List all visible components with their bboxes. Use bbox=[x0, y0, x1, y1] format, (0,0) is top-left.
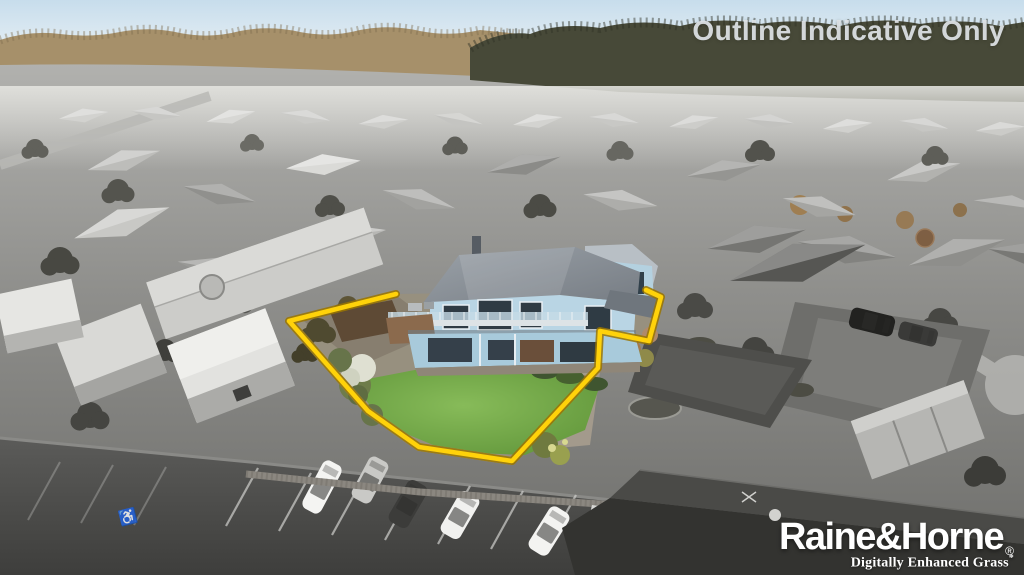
brand-logo: Raine&Horne® Digitally Enhanced Grass* bbox=[779, 518, 1012, 572]
outline-note: Outline Indicative Only bbox=[692, 15, 1005, 47]
gazebo-roof bbox=[916, 229, 934, 247]
chimney bbox=[472, 236, 481, 254]
registered-mark: ® bbox=[1005, 544, 1014, 558]
distant-haze bbox=[0, 86, 1024, 170]
scene: ♿ bbox=[0, 0, 1024, 575]
aerial-photo: ♿ bbox=[0, 0, 1024, 575]
water-tank bbox=[200, 275, 224, 299]
brand-logo-text: Raine&Horne bbox=[779, 516, 1003, 558]
